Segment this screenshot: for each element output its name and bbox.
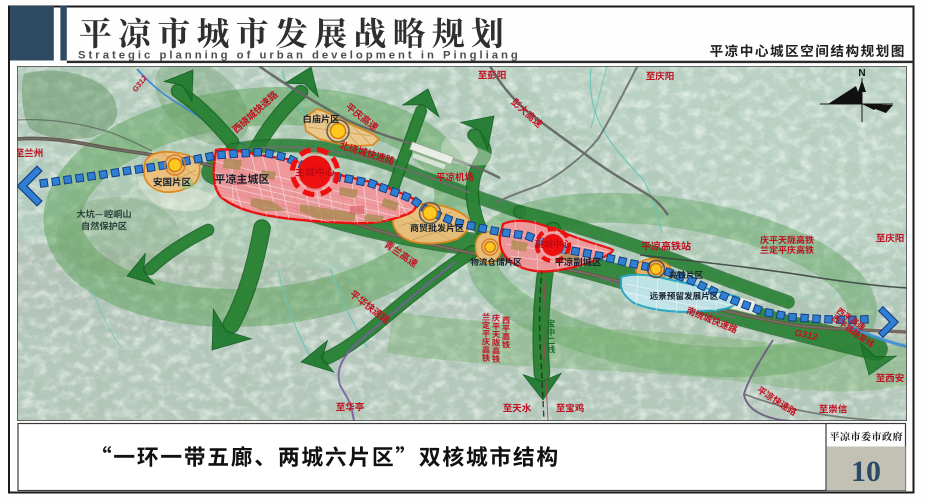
svg-text:10: 10 [851,455,881,488]
svg-text:Strategic planning of urban de: Strategic planning of urban development … [78,49,521,61]
svg-text:N: N [858,68,865,79]
